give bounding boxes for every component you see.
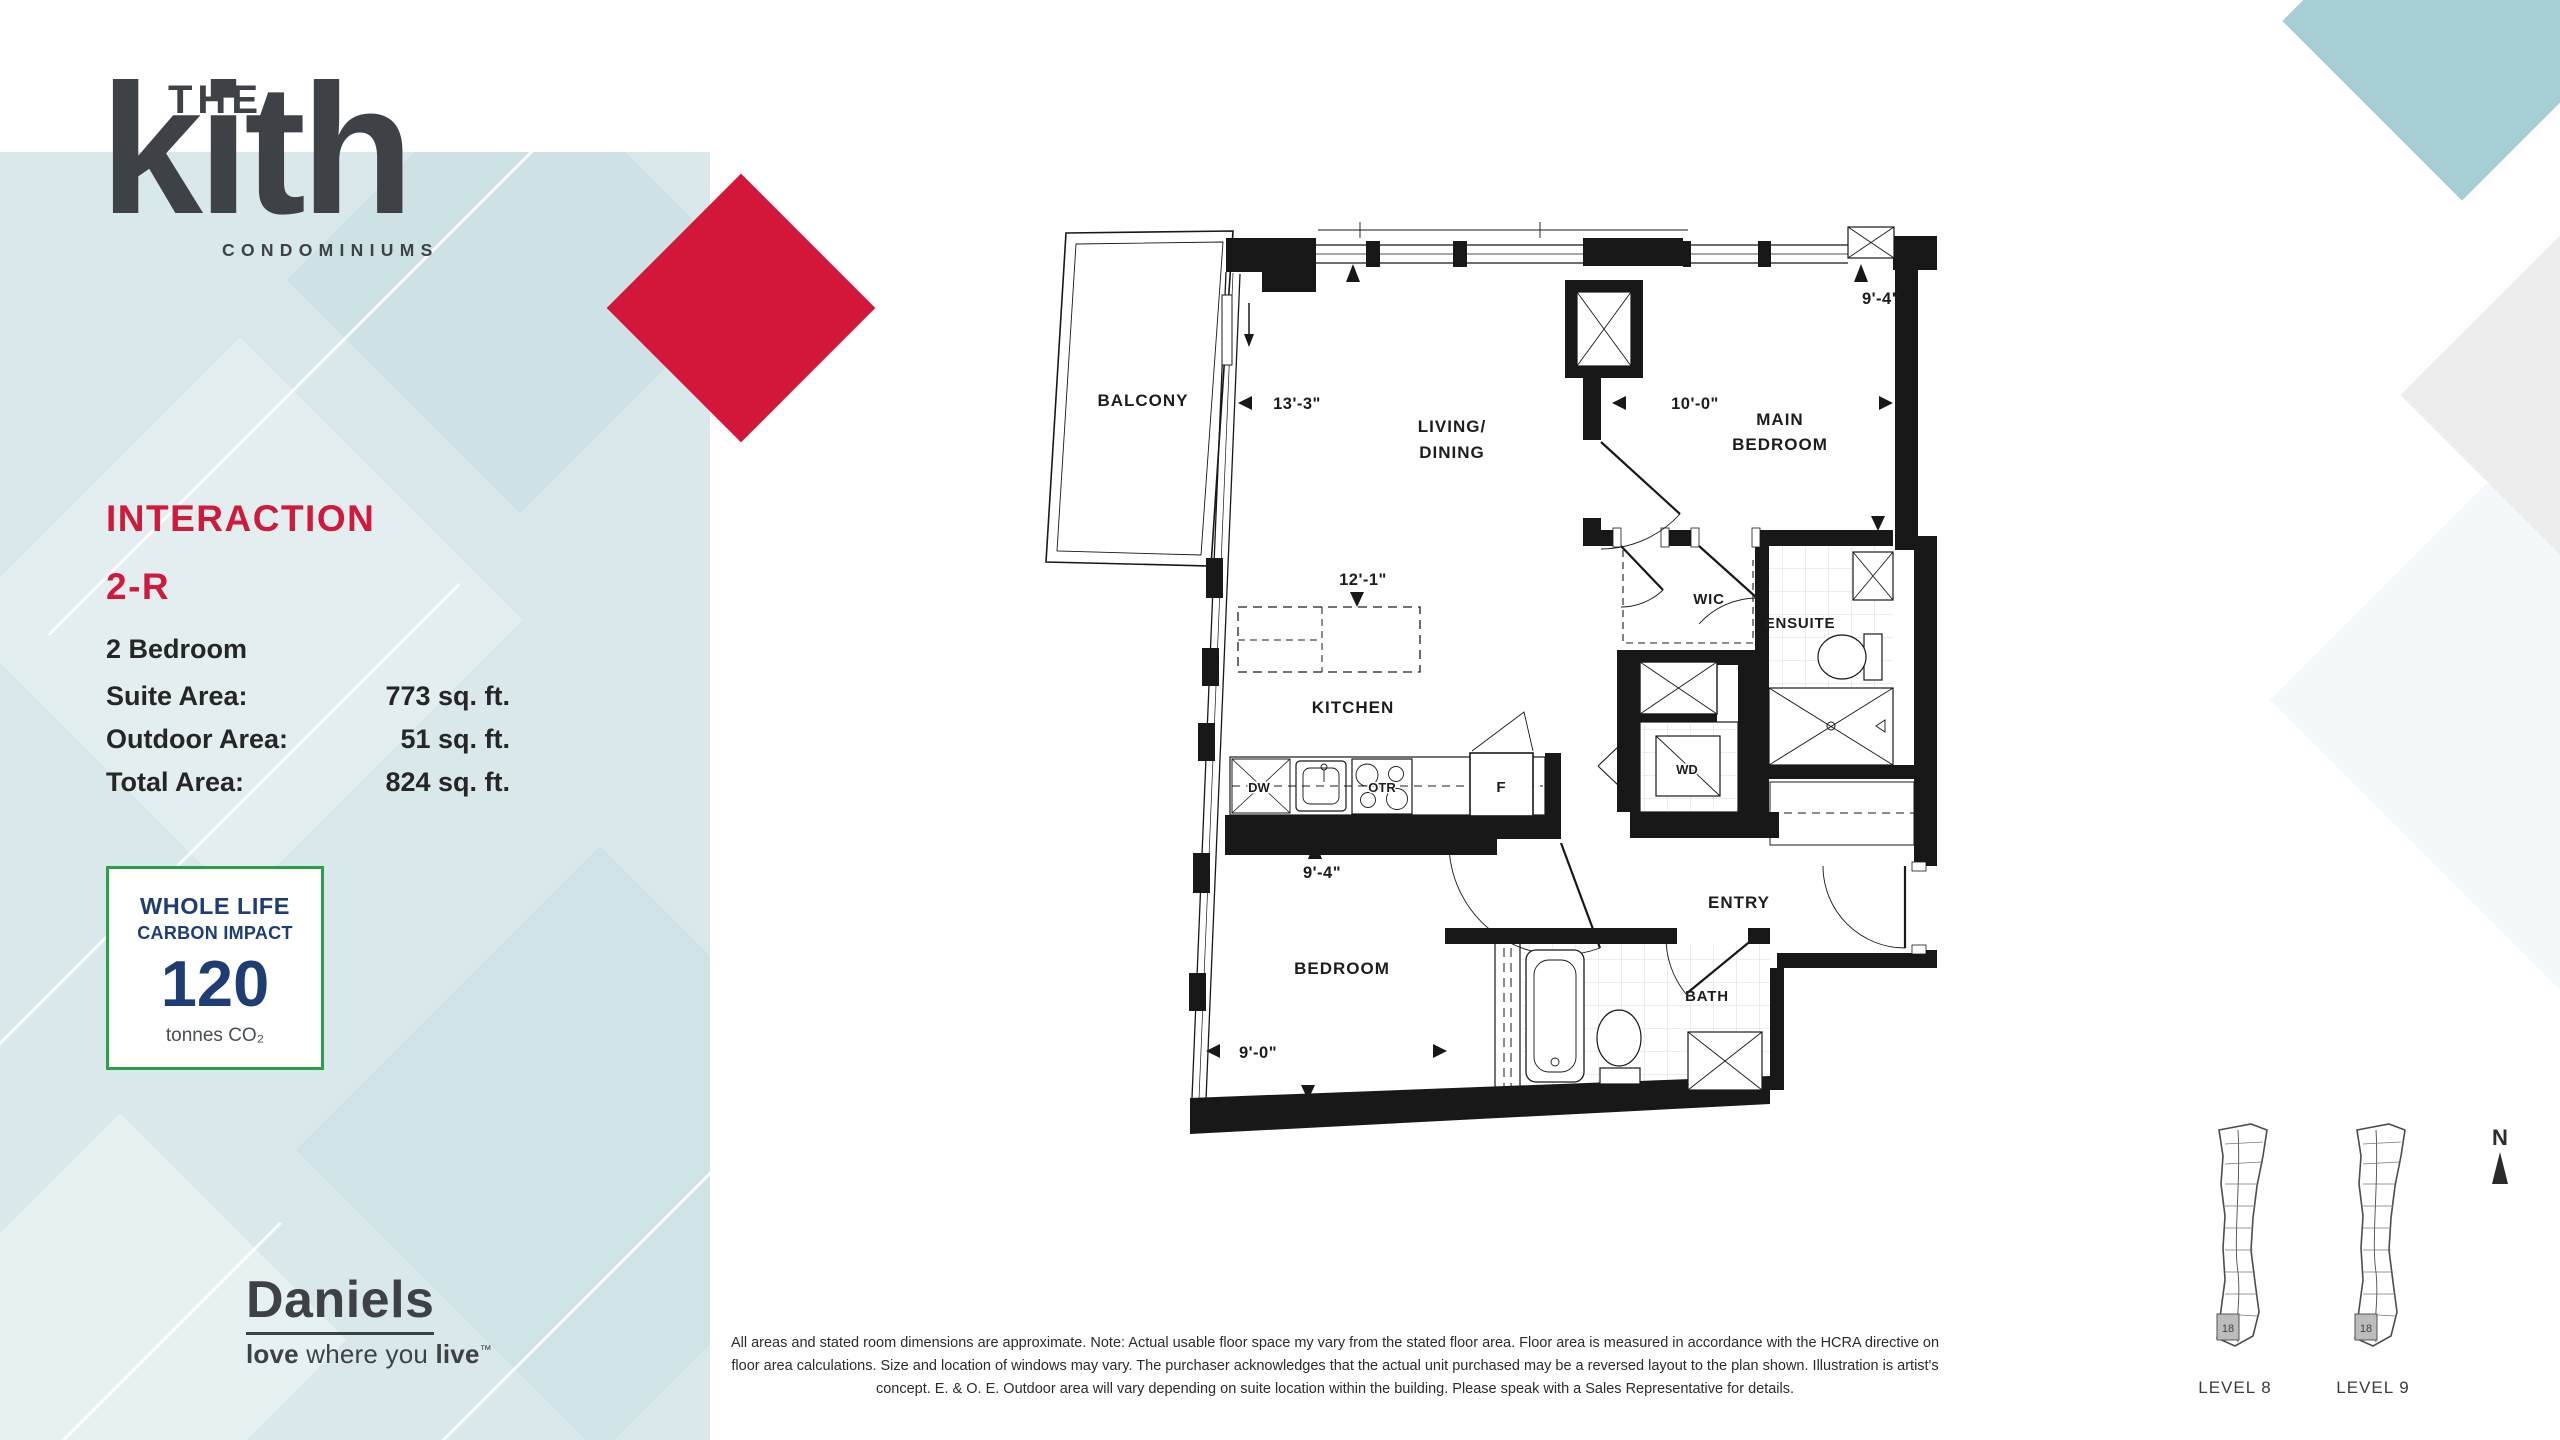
disclaimer-line: All areas and stated room dimensions are… (700, 1332, 1970, 1355)
dim-main-depth: 9'-4" (1862, 290, 1900, 308)
toilet-tank (1864, 634, 1882, 680)
living-label-2: DINING (1419, 443, 1485, 462)
carbon-impact-badge: WHOLE LIFE CARBON IMPACT 120 tonnes CO₂ (106, 866, 324, 1070)
disclaimer-line: floor area calculations. Size and locati… (700, 1355, 1970, 1378)
bedroom-closet (1495, 944, 1520, 1092)
ensuite-label: ENSUITE (1765, 615, 1836, 632)
entry-closet (1770, 782, 1914, 845)
fridge-label: F (1496, 779, 1505, 796)
logo-kith: kith (100, 58, 409, 243)
dim-living-depth: 12'-1" (1339, 571, 1387, 589)
level9-keyplan (2355, 1124, 2405, 1346)
level8-label: LEVEL 8 (2198, 1378, 2271, 1397)
dw-label: DW (1248, 780, 1270, 795)
linen-closet (1640, 662, 1717, 714)
kitchen-label: KITCHEN (1312, 698, 1395, 717)
kitchen-counter: DW OTR F (1230, 712, 1545, 816)
wic-label: WIC (1693, 591, 1725, 608)
bath-toilet (1597, 1010, 1641, 1066)
corner-window (1848, 227, 1894, 258)
unit-collection-title: INTERACTION (106, 498, 375, 540)
dim-bedroom-depth: 9'-4" (1303, 864, 1341, 882)
north-arrow: N (2492, 1125, 2508, 1184)
corner-diamond-teal (2282, 0, 2560, 201)
wic-shelf-dashed (1623, 550, 1753, 643)
unit-type: 2 Bedroom (106, 634, 247, 665)
entry-label: ENTRY (1708, 893, 1770, 912)
logo-condominiums: CONDOMINIUMS (222, 240, 439, 261)
dim-living-width: 13'-3" (1273, 395, 1321, 413)
main-bedroom-label-1: MAIN (1756, 410, 1803, 429)
bath-label: BATH (1685, 988, 1729, 1005)
tagline-live: live (435, 1339, 479, 1369)
window-wall-left (1189, 272, 1254, 1100)
carbon-value: 120 (109, 951, 321, 1016)
developer-tagline: love where you live™ (246, 1339, 492, 1370)
carbon-title-line2: CARBON IMPACT (109, 923, 321, 944)
key-plans: 18 LEVEL 8 LEVEL 9 N (2180, 1100, 2540, 1420)
developer-logo: Daniels love where you live™ (246, 1270, 492, 1370)
developer-name: Daniels (246, 1270, 434, 1335)
disclaimer: All areas and stated room dimensions are… (700, 1332, 1970, 1401)
unit-area-table: Suite Area: 773 sq. ft. Outdoor Area: 51… (106, 682, 510, 811)
balcony-door (1222, 295, 1232, 365)
level9-label: LEVEL 9 (2336, 1378, 2409, 1397)
disclaimer-line: concept. E. & O. E. Outdoor area will va… (700, 1378, 1970, 1401)
tagline-where: where you (299, 1339, 436, 1369)
door-arrowhead (1244, 334, 1254, 347)
washer-dryer-label: WD (1676, 762, 1698, 777)
level8-keyplan (2217, 1124, 2267, 1346)
dim-main-width: 10'-0" (1671, 395, 1719, 413)
otr-label: OTR (1368, 780, 1396, 795)
brochure-page: THE kith CONDOMINIUMS INTERACTION 2-R 2 … (0, 0, 2560, 1440)
fridge (1470, 712, 1533, 816)
balcony-label: BALCONY (1097, 391, 1188, 410)
living-label-1: LIVING/ (1418, 417, 1486, 436)
toilet-bowl (1818, 635, 1866, 679)
area-row-suite: Suite Area: 773 sq. ft. (106, 682, 510, 711)
area-label: Suite Area: (106, 682, 248, 711)
area-value: 824 sq. ft. (385, 768, 510, 797)
kitchen-island (1238, 607, 1420, 672)
carbon-title-line1: WHOLE LIFE (109, 893, 321, 920)
dim-bedroom-width: 9'-0" (1239, 1044, 1277, 1062)
floor-plan: WD (1000, 200, 2000, 1160)
carbon-units: tonnes CO₂ (109, 1025, 321, 1047)
area-row-outdoor: Outdoor Area: 51 sq. ft. (106, 725, 510, 754)
tagline-tm: ™ (480, 1342, 492, 1356)
main-bedroom-label-2: BEDROOM (1732, 435, 1828, 454)
area-label: Outdoor Area: (106, 725, 288, 754)
area-label: Total Area: (106, 768, 244, 797)
area-value: 51 sq. ft. (400, 725, 510, 754)
area-value: 773 sq. ft. (385, 682, 510, 711)
unit-variant: 2-R (106, 566, 170, 608)
tagline-love: love (246, 1339, 299, 1369)
area-row-total: Total Area: 824 sq. ft. (106, 768, 510, 797)
north-label: N (2492, 1125, 2508, 1150)
bedroom-label: BEDROOM (1294, 959, 1390, 978)
